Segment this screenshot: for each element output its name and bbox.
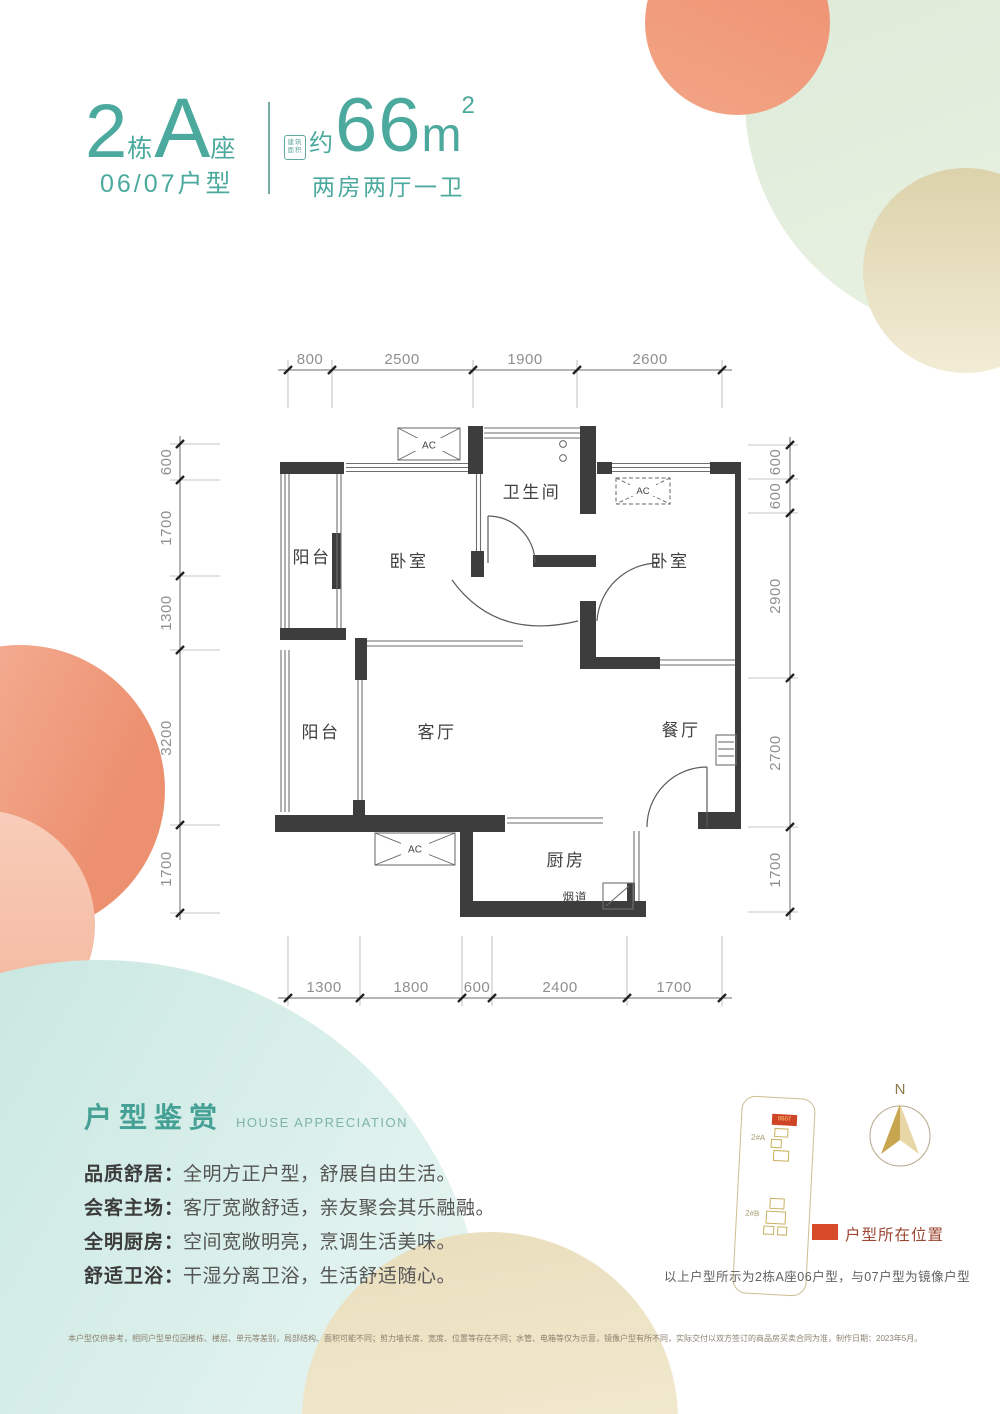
feature-text: 客厅宽敞舒适，亲友聚会其乐融融。	[183, 1198, 495, 1219]
siteplan-unit-block	[769, 1198, 785, 1210]
legend-color-swatch	[812, 1224, 838, 1240]
feature-item: 品质舒居：全明方正户型，舒展自由生活。	[84, 1158, 495, 1192]
room-label-kitchen: 厨房	[547, 851, 586, 870]
ac-label-right: AC	[636, 486, 649, 497]
feature-text: 空间宽敞明亮，烹调生活美味。	[183, 1232, 456, 1253]
dim-right-2900: 2900	[767, 578, 784, 613]
dim-right-1700: 1700	[767, 852, 784, 887]
building-number: 2	[85, 89, 127, 174]
feature-label: 会客主场	[84, 1198, 164, 1219]
feature-text: 干湿分离卫浴，生活舒适随心。	[183, 1266, 456, 1287]
area-superscript: 2	[462, 92, 475, 119]
unit-location-highlight: 0607	[772, 1114, 798, 1126]
dim-top-2600: 2600	[632, 351, 667, 368]
disclaimer-text: 本户型仅供参考，相同户型单位因楼栋、楼层、单元等差别，局部结构、面积可能不同；剪…	[68, 1333, 978, 1344]
feature-separator: ：	[164, 1232, 183, 1253]
dim-left-1700b: 1700	[158, 851, 175, 886]
area-unit: m	[422, 109, 462, 162]
appreciation-title-en: HOUSE APPRECIATION	[236, 1115, 408, 1130]
building-b-label: 2#B	[745, 1209, 760, 1219]
ac-label-top: AC	[422, 441, 436, 452]
legend-label: 户型所在位置	[845, 1223, 944, 1245]
building-title: 2栋A座	[85, 86, 237, 170]
feature-separator: ：	[164, 1266, 183, 1287]
area-approx: 约	[309, 130, 333, 157]
dim-bottom-1300: 1300	[306, 979, 341, 996]
appreciation-title: 户型鉴赏HOUSE APPRECIATION	[84, 1096, 408, 1136]
dim-right-600a: 600	[767, 449, 784, 476]
siteplan-note: 以上户型所示为2栋A座06户型，与07户型为镜像户型	[664, 1266, 970, 1285]
feature-item: 舒适卫浴：干湿分离卫浴，生活舒适随心。	[84, 1260, 495, 1294]
layout-description: 两房两厅一卫	[312, 168, 465, 202]
compass-arrow-light	[900, 1104, 919, 1154]
area-seal-icon: 建筑 面积	[284, 135, 306, 160]
appreciation-title-cn: 户型鉴赏	[84, 1102, 224, 1133]
feature-label: 全明厨房	[84, 1232, 164, 1253]
room-label-balcony-top: 阳台	[293, 548, 332, 567]
area-seal-line2: 面积	[285, 147, 305, 155]
dim-top-2500: 2500	[384, 351, 419, 368]
dim-right-600b: 600	[767, 483, 784, 510]
dim-top-1900: 1900	[507, 351, 542, 368]
compass-arrow-dark	[881, 1104, 900, 1154]
block-letter: A	[154, 81, 210, 175]
feature-list: 品质舒居：全明方正户型，舒展自由生活。 会客主场：客厅宽敞舒适，亲友聚会其乐融融…	[84, 1158, 495, 1294]
room-label-living: 客厅	[418, 723, 457, 742]
floor-plan: 800 2500 1900 2600 1300 1800 600 2400 17…	[150, 350, 810, 1020]
siteplan-unit-block	[777, 1226, 787, 1236]
dim-bottom-1800: 1800	[393, 979, 428, 996]
room-label-flue: 烟道	[563, 890, 588, 904]
room-label-bedroom-right: 卧室	[651, 552, 690, 571]
block-suffix: 座	[210, 135, 237, 163]
dim-bottom-1700: 1700	[656, 979, 691, 996]
siteplan-unit-block	[766, 1211, 787, 1225]
room-label-balcony-mid: 阳台	[302, 723, 341, 742]
feature-separator: ：	[164, 1198, 183, 1219]
dim-right-2700: 2700	[767, 735, 784, 770]
plumbing-symbols	[560, 441, 567, 462]
dim-left-3200: 3200	[158, 720, 175, 755]
area-value: 66	[335, 83, 422, 168]
area-figure: 约66m2	[309, 88, 475, 164]
compass-north-label: N	[895, 1081, 906, 1098]
feature-text: 全明方正户型，舒展自由生活。	[183, 1164, 456, 1185]
siteplan-unit-block	[773, 1150, 790, 1162]
building-a-label: 2#A	[751, 1133, 766, 1143]
feature-item: 会客主场：客厅宽敞舒适，亲友聚会其乐融融。	[84, 1192, 495, 1226]
area-seal-line1: 建筑	[285, 139, 305, 147]
ac-label-bottom: AC	[408, 845, 422, 856]
room-label-dining: 餐厅	[662, 721, 701, 740]
siteplan-unit-block	[774, 1128, 788, 1138]
room-label-bathroom: 卫生间	[503, 483, 562, 502]
feature-separator: ：	[164, 1164, 183, 1185]
dim-left-600: 600	[158, 449, 175, 476]
siteplan-unit-block	[763, 1225, 774, 1235]
header-divider	[268, 102, 270, 194]
dim-bottom-2400: 2400	[542, 979, 577, 996]
dim-left-1700: 1700	[158, 510, 175, 545]
dim-left-1300: 1300	[158, 595, 175, 630]
feature-label: 舒适卫浴	[84, 1266, 164, 1287]
siteplan-unit-block	[771, 1139, 782, 1149]
unit-types-label: 06/07户型	[100, 164, 234, 200]
feature-label: 品质舒居	[84, 1164, 164, 1185]
dim-top-800: 800	[297, 351, 324, 368]
feature-item: 全明厨房：空间宽敞明亮，烹调生活美味。	[84, 1226, 495, 1260]
dim-bottom-600: 600	[464, 979, 491, 996]
building-suffix: 栋	[127, 135, 154, 163]
floorplan-poster-page: 2栋A座 06/07户型 建筑 面积 约66m2 两房两厅一卫	[0, 0, 1000, 1414]
room-label-bedroom-left: 卧室	[390, 552, 429, 571]
compass: N	[862, 1078, 938, 1174]
